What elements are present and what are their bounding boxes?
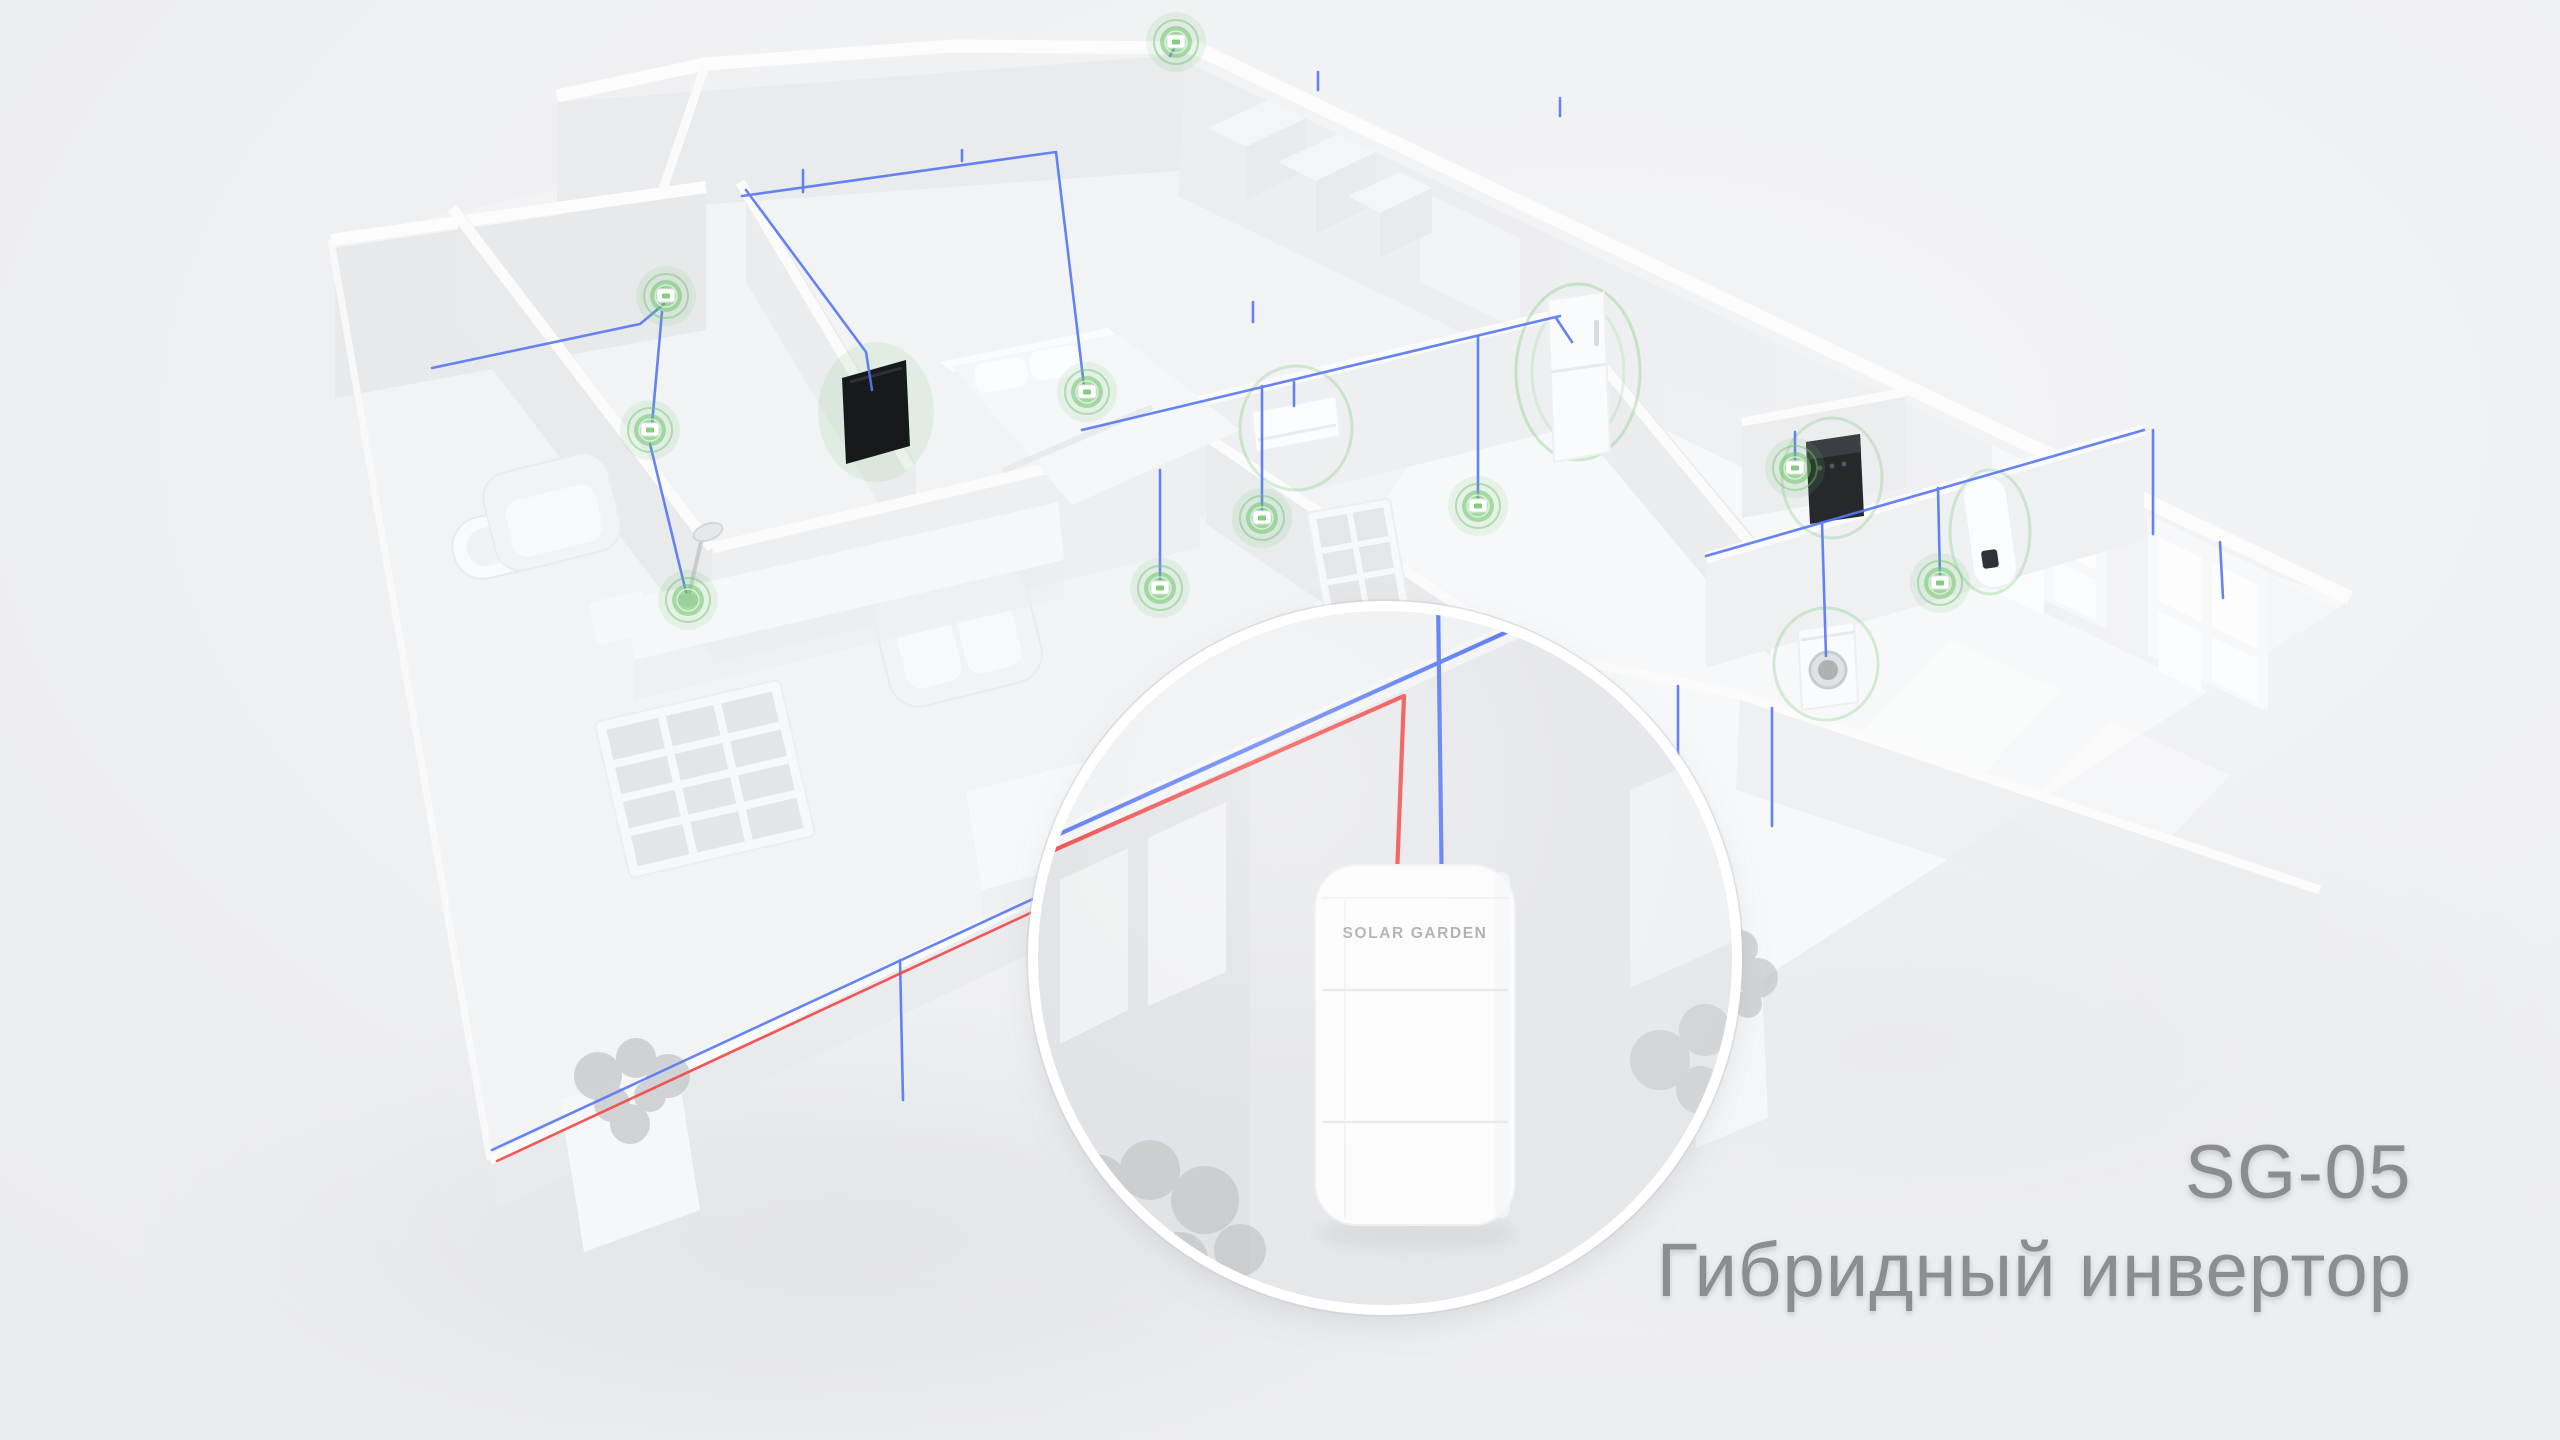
- smart-node-icon: [1765, 438, 1825, 498]
- tv: [818, 342, 934, 482]
- smart-node-icon: [1232, 488, 1292, 548]
- caption-product: Гибридный инвертор: [1657, 1228, 2412, 1313]
- smart-home-render: SOLAR GARDEN SG-05 Гибридный инвертор: [0, 0, 2560, 1440]
- caption-model: SG-05: [2185, 1130, 2412, 1215]
- smart-node-icon: [658, 570, 718, 630]
- smart-node-icon: [636, 266, 696, 326]
- smart-node-icon: [1448, 476, 1508, 536]
- lens-glass-tint: [1037, 610, 1733, 1306]
- smart-node-icon: [620, 400, 680, 460]
- smart-node-icon: [1146, 12, 1206, 72]
- smart-node-icon: [1130, 558, 1190, 618]
- smart-node-icon: [1057, 362, 1117, 422]
- smart-node-icon: [1910, 553, 1970, 613]
